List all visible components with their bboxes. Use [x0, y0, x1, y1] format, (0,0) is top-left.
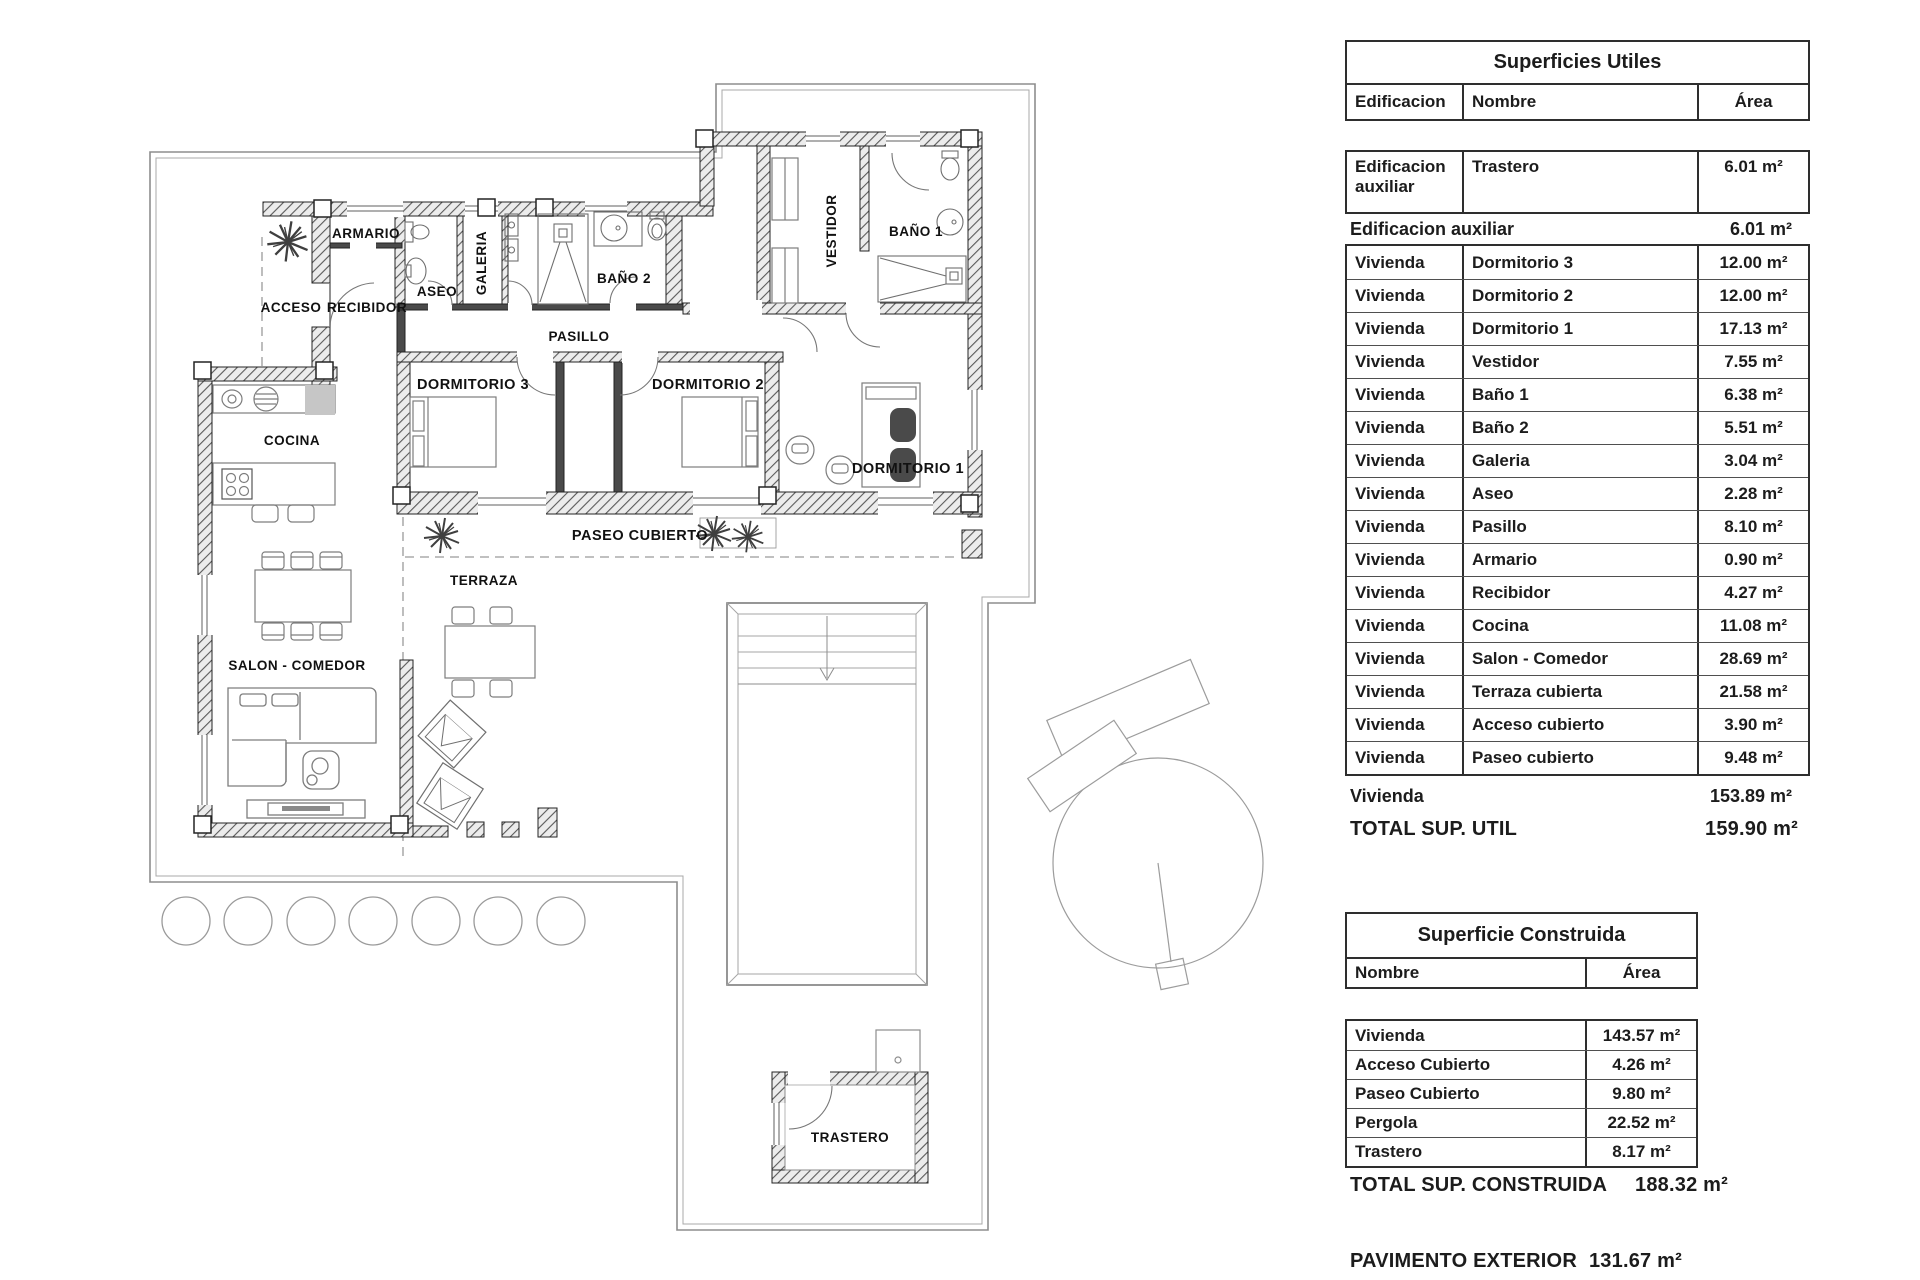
row-area-cell: 2.28 m² — [1697, 478, 1808, 510]
room-label-pasillo: PASILLO — [548, 329, 609, 344]
row-nombre-cell: Aseo — [1462, 478, 1697, 510]
row-edificacion-cell: Vivienda — [1347, 251, 1462, 275]
row-nombre-cell: Dormitorio 1 — [1462, 313, 1697, 345]
aux-total-line: Edificacion auxiliar 6.01 m² — [1345, 214, 1810, 244]
room-label-vestidor: VESTIDOR — [824, 194, 839, 267]
row-area-cell: 4.26 m² — [1585, 1051, 1696, 1079]
row-area-cell: 3.90 m² — [1697, 709, 1808, 741]
row-nombre-cell: Salon - Comedor — [1462, 643, 1697, 675]
aux-nombre-cell: Trastero — [1462, 152, 1697, 212]
room-label-dormitorio1: DORMITORIO 1 — [852, 461, 964, 477]
superficie-construida-title: Superficie Construida — [1347, 914, 1696, 959]
aux-edificacion-cell: Edificacion auxiliar — [1347, 152, 1462, 199]
col-header-edificacion: Edificacion — [1347, 90, 1462, 114]
trastero-detail — [785, 1030, 920, 1170]
table-row: Vivienda Dormitorio 1 17.13 m² — [1347, 312, 1808, 345]
table-row: Vivienda 143.57 m² — [1347, 1021, 1696, 1050]
room-label-aseo: ASEO — [417, 284, 457, 299]
table-row: Vivienda Baño 2 5.51 m² — [1347, 411, 1808, 444]
table-row: Paseo Cubierto 9.80 m² — [1347, 1079, 1696, 1108]
construida-rows-box: Vivienda 143.57 m² Acceso Cubierto 4.26 … — [1345, 1019, 1698, 1168]
row-edificacion-cell: Vivienda — [1347, 647, 1462, 671]
room-label-paseo: PASEO CUBIERTO — [572, 528, 708, 544]
row-edificacion-cell: Vivienda — [1347, 284, 1462, 308]
pavimento-exterior-line: PAVIMENTO EXTERIOR 131.67 m² — [1345, 1246, 1698, 1276]
table-row: Vivienda Galeria 3.04 m² — [1347, 444, 1808, 477]
row-area-cell: 4.27 m² — [1697, 577, 1808, 609]
superficie-construida-table: Superficie Construida Nombre Área Vivien… — [1345, 912, 1698, 1276]
room-label-galeria: GALERIA — [474, 231, 489, 295]
kitchen-fixtures — [213, 385, 335, 522]
superficie-construida-header-box: Superficie Construida Nombre Área — [1345, 912, 1698, 989]
table-row: Trastero 8.17 m² — [1347, 1137, 1696, 1166]
table-row: Vivienda Recibidor 4.27 m² — [1347, 576, 1808, 609]
row-nombre-cell: Trastero — [1347, 1140, 1585, 1164]
table-row: Vivienda Acceso cubierto 3.90 m² — [1347, 708, 1808, 741]
row-area-cell: 6.38 m² — [1697, 379, 1808, 411]
table-row: Vivienda Baño 1 6.38 m² — [1347, 378, 1808, 411]
superficie-construida-column-headers: Nombre Área — [1347, 959, 1696, 987]
row-nombre-cell: Baño 2 — [1462, 412, 1697, 444]
vivienda-total-line: Vivienda 153.89 m² — [1345, 780, 1810, 812]
row-nombre-cell: Recibidor — [1462, 577, 1697, 609]
row-edificacion-cell: Vivienda — [1347, 581, 1462, 605]
total-construida-label: TOTAL SUP. CONSTRUIDA — [1350, 1174, 1607, 1197]
table-row: Vivienda Terraza cubierta 21.58 m² — [1347, 675, 1808, 708]
row-nombre-cell: Vestidor — [1462, 346, 1697, 378]
row-edificacion-cell: Vivienda — [1347, 317, 1462, 341]
row-nombre-cell: Cocina — [1462, 610, 1697, 642]
dining-set — [255, 552, 351, 640]
table-row: Vivienda Pasillo 8.10 m² — [1347, 510, 1808, 543]
aux-total-label: Edificacion auxiliar — [1350, 219, 1514, 240]
table-title: Superficies Utiles — [1494, 51, 1662, 74]
room-label-bano2: BAÑO 2 — [597, 271, 651, 286]
total-sup-util-line: TOTAL SUP. UTIL 159.90 m² — [1345, 812, 1810, 846]
aux-building-row: Edificacion auxiliar Trastero 6.01 m² — [1345, 150, 1810, 214]
aux-area-cell: 6.01 m² — [1697, 152, 1808, 212]
table-row: Vivienda Vestidor 7.55 m² — [1347, 345, 1808, 378]
row-area-cell: 0.90 m² — [1697, 544, 1808, 576]
room-label-armario: ARMARIO — [332, 226, 400, 241]
col-header-area: Área — [1585, 959, 1696, 987]
pool — [727, 603, 927, 985]
row-nombre-cell: Terraza cubierta — [1462, 676, 1697, 708]
row-nombre-cell: Vivienda — [1347, 1024, 1585, 1048]
row-area-cell: 12.00 m² — [1697, 280, 1808, 312]
row-nombre-cell: Acceso Cubierto — [1347, 1053, 1585, 1077]
row-edificacion-cell: Vivienda — [1347, 515, 1462, 539]
row-edificacion-cell: Vivienda — [1347, 746, 1462, 770]
total-sup-util-value: 159.90 m² — [1705, 818, 1798, 841]
plant-icon — [424, 518, 459, 553]
superficies-utiles-title: Superficies Utiles — [1347, 42, 1808, 85]
row-edificacion-cell: Vivienda — [1347, 449, 1462, 473]
row-area-cell: 12.00 m² — [1697, 246, 1808, 279]
col-header-area: Área — [1697, 85, 1808, 119]
row-area-cell: 8.17 m² — [1585, 1138, 1696, 1166]
table-row: Pergola 22.52 m² — [1347, 1108, 1696, 1137]
row-area-cell: 28.69 m² — [1697, 643, 1808, 675]
table-row: Vivienda Dormitorio 3 12.00 m² — [1347, 246, 1808, 279]
row-nombre-cell: Pergola — [1347, 1111, 1585, 1135]
row-nombre-cell: Dormitorio 2 — [1462, 280, 1697, 312]
row-area-cell: 21.58 m² — [1697, 676, 1808, 708]
row-area-cell: 7.55 m² — [1697, 346, 1808, 378]
row-area-cell: 3.04 m² — [1697, 445, 1808, 477]
row-area-cell: 22.52 m² — [1585, 1109, 1696, 1137]
room-label-cocina: COCINA — [264, 433, 320, 448]
total-construida-value: 188.32 m² — [1635, 1174, 1728, 1197]
superficies-utiles-header-box: Superficies Utiles Edificacion Nombre Ár… — [1345, 40, 1810, 121]
total-sup-util-label: TOTAL SUP. UTIL — [1350, 818, 1517, 841]
table-title: Superficie Construida — [1418, 924, 1626, 947]
vivienda-total-value: 153.89 m² — [1710, 786, 1792, 807]
table-row: Vivienda Salon - Comedor 28.69 m² — [1347, 642, 1808, 675]
plant-icon — [267, 221, 307, 261]
row-edificacion-cell: Vivienda — [1347, 713, 1462, 737]
row-area-cell: 11.08 m² — [1697, 610, 1808, 642]
row-area-cell: 143.57 m² — [1585, 1021, 1696, 1050]
row-edificacion-cell: Vivienda — [1347, 350, 1462, 374]
row-edificacion-cell: Vivienda — [1347, 680, 1462, 704]
bathroom-fixtures — [405, 151, 966, 304]
row-area-cell: 9.80 m² — [1585, 1080, 1696, 1108]
landscape-circles — [162, 897, 585, 945]
row-nombre-cell: Armario — [1462, 544, 1697, 576]
superficies-utiles-table: Superficies Utiles Edificacion Nombre Ár… — [1345, 40, 1810, 846]
col-header-nombre: Nombre — [1462, 85, 1697, 119]
room-label-acceso: ACCESO — [261, 300, 322, 315]
table-row: Vivienda Armario 0.90 m² — [1347, 543, 1808, 576]
vivienda-total-label: Vivienda — [1350, 786, 1424, 807]
table-row: Acceso Cubierto 4.26 m² — [1347, 1050, 1696, 1079]
total-construida-line: TOTAL SUP. CONSTRUIDA 188.32 m² — [1345, 1170, 1740, 1200]
row-area-cell: 9.48 m² — [1697, 742, 1808, 774]
room-label-terraza: TERRAZA — [450, 573, 518, 588]
room-label-salon: SALON - COMEDOR — [228, 658, 365, 673]
row-edificacion-cell: Vivienda — [1347, 383, 1462, 407]
table-row: Vivienda Aseo 2.28 m² — [1347, 477, 1808, 510]
room-label-dormitorio3: DORMITORIO 3 — [417, 377, 529, 393]
aux-total-value: 6.01 m² — [1730, 219, 1792, 240]
row-edificacion-cell: Vivienda — [1347, 482, 1462, 506]
row-edificacion-cell: Vivienda — [1347, 548, 1462, 572]
row-area-cell: 17.13 m² — [1697, 313, 1808, 345]
vivienda-rows-box: Vivienda Dormitorio 3 12.00 m² Vivienda … — [1345, 244, 1810, 776]
table-row: Vivienda Dormitorio 2 12.00 m² — [1347, 279, 1808, 312]
table-row: Vivienda Paseo cubierto 9.48 m² — [1347, 741, 1808, 774]
terraza-furniture — [417, 607, 535, 829]
row-area-cell: 8.10 m² — [1697, 511, 1808, 543]
room-label-trastero: TRASTERO — [811, 1130, 889, 1145]
row-area-cell: 5.51 m² — [1697, 412, 1808, 444]
pavimento-value: 131.67 m² — [1589, 1250, 1682, 1273]
room-label-bano1: BAÑO 1 — [889, 224, 943, 239]
row-edificacion-cell: Vivienda — [1347, 614, 1462, 638]
row-nombre-cell: Paseo Cubierto — [1347, 1082, 1585, 1106]
room-label-dormitorio2: DORMITORIO 2 — [652, 377, 764, 393]
row-nombre-cell: Galeria — [1462, 445, 1697, 477]
row-nombre-cell: Acceso cubierto — [1462, 709, 1697, 741]
col-header-nombre: Nombre — [1347, 961, 1585, 985]
row-edificacion-cell: Vivienda — [1347, 416, 1462, 440]
pergola — [1028, 659, 1263, 989]
living-room-furniture — [228, 688, 376, 818]
pavimento-label: PAVIMENTO EXTERIOR — [1350, 1250, 1577, 1273]
row-nombre-cell: Pasillo — [1462, 511, 1697, 543]
row-nombre-cell: Paseo cubierto — [1462, 742, 1697, 774]
superficies-utiles-column-headers: Edificacion Nombre Área — [1347, 85, 1808, 119]
room-label-recibidor: RECIBIDOR — [327, 300, 407, 315]
floorplan-page: ARMARIO ACCESO RECIBIDOR ASEO GALERIA BA… — [0, 0, 1920, 1280]
row-nombre-cell: Baño 1 — [1462, 379, 1697, 411]
table-row: Vivienda Cocina 11.08 m² — [1347, 609, 1808, 642]
row-nombre-cell: Dormitorio 3 — [1462, 246, 1697, 279]
